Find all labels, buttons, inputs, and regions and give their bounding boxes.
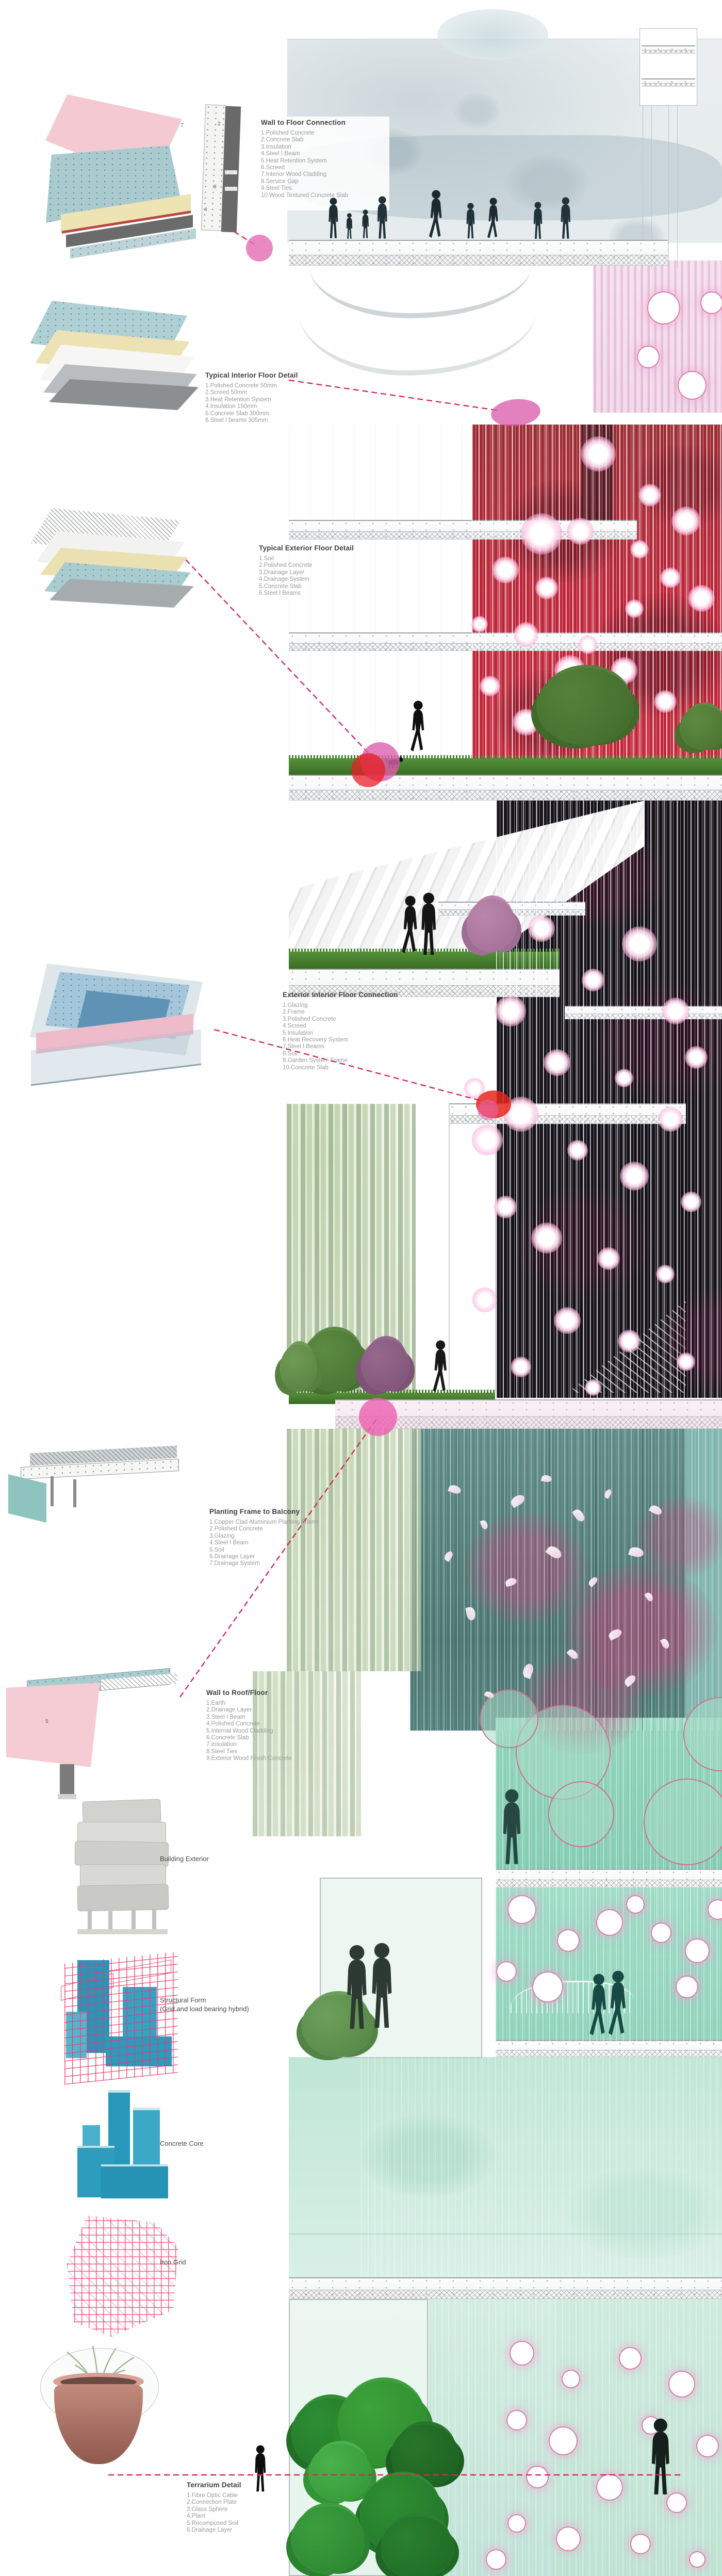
light-orb: [618, 1330, 641, 1352]
light-orb: [480, 676, 500, 696]
light-orb: [647, 291, 680, 324]
light-orb: [549, 2426, 578, 2455]
tree-canopy: [680, 706, 722, 750]
light-orb: [544, 1049, 570, 1076]
detail-item: 4.Insulation 150mm: [205, 403, 277, 410]
person-silhouette: [463, 203, 478, 240]
figure-number: 9: [214, 184, 217, 190]
detail-item: 7.Drainage System: [209, 1560, 319, 1567]
d6-post-cap: [58, 1794, 76, 1799]
light-orb: [554, 1307, 581, 1334]
grass-strip-a: [289, 758, 722, 776]
detail-item: 1.Soil: [259, 556, 313, 562]
detail-title-ext-int: Exterior Interior Floor Connection: [283, 991, 398, 999]
light-orb: [689, 2551, 705, 2568]
light-orb: [496, 1961, 517, 1982]
detail-item: 10.Concrete Slab: [283, 1065, 348, 1071]
light-orb: [656, 1265, 675, 1283]
detail-item: 5.Recomposed Soil: [187, 2520, 238, 2527]
figure-number: 2: [218, 121, 221, 127]
detail-item: 3.Drainage Layer: [259, 569, 313, 576]
light-orb: [671, 507, 700, 535]
person-silhouette: [557, 197, 575, 240]
detail-item: 1.Copper Clad Aluminium Planting Frame: [209, 1519, 319, 1526]
mass-3: [75, 1840, 169, 1867]
light-orb: [472, 1287, 497, 1312]
light-orb: [626, 1895, 645, 1914]
detail-item: 3.Glazing: [209, 1533, 319, 1540]
person-silhouette: [496, 1789, 528, 1867]
detail-list-interior-floor: 1.Polished Concrete 50mm2.Screed 50mm3.H…: [205, 383, 277, 424]
slab-mid-pink-tint: [335, 1399, 722, 1429]
light-orb: [472, 1124, 503, 1155]
top-walkway-slab: [289, 240, 668, 266]
person-silhouette: [373, 196, 391, 240]
shaft-detail: [639, 28, 697, 106]
person-silhouette: [251, 2445, 270, 2493]
detail-title-exterior-floor: Typical Exterior Floor Detail: [259, 544, 354, 552]
light-orb: [696, 2435, 719, 2457]
detail-item: 9.Steel Ties: [261, 185, 348, 192]
slab-mint-2: [496, 2040, 722, 2057]
detail-item: 5.Heat Retention System: [261, 158, 348, 165]
d5-post-b: [73, 1479, 76, 1507]
tree-canopy: [467, 899, 516, 952]
ig-grid: [67, 2215, 178, 2337]
detail-item: 7.Interior Wood Cladding: [261, 171, 348, 178]
detail-title-terrarium: Terrarium Detail: [187, 2481, 241, 2489]
detail-item: 5.Concrete Slab 300mm: [205, 411, 277, 417]
light-orb: [495, 996, 526, 1026]
light-orb: [557, 1929, 580, 1952]
light-orb: [582, 969, 604, 991]
mass-post-c: [132, 1910, 136, 1930]
person-silhouette: [430, 1340, 451, 1395]
mass-post-a: [88, 1909, 92, 1929]
detail-item: 9.Exterior Wood Finish Concrete: [206, 1755, 292, 1762]
light-orb: [528, 915, 555, 942]
detail-list-exterior-floor: 1.Soil2.Polished Concrete3.Drainage Laye…: [259, 556, 313, 597]
outlined-circle: [480, 1689, 538, 1748]
detail-item: 2.Polished Concrete: [209, 1526, 319, 1532]
detail-title-interior-floor: Typical Interior Floor Detail: [205, 371, 298, 379]
shaft-rail-b: [668, 106, 678, 268]
light-orb: [622, 926, 657, 961]
mass-2: [77, 1822, 166, 1844]
detail-item: 3.Glass Sphere: [187, 2506, 238, 2513]
light-orb: [514, 622, 538, 647]
detail-item: 4.Steel I Beam: [209, 1540, 319, 1546]
light-orb: [700, 291, 722, 314]
detail-item: 2.Connection Plate: [187, 2499, 238, 2506]
light-orb: [507, 2514, 526, 2533]
detail-item: 4.Plant: [187, 2513, 238, 2520]
d5-teal-wing: [8, 1471, 46, 1523]
mass-base: [77, 1929, 168, 1934]
light-orb: [660, 567, 681, 588]
watercolor-blob-top: [437, 9, 548, 60]
light-orb: [654, 690, 677, 713]
pool-waterline: [289, 2233, 722, 2235]
d1-steel-tie-a: [225, 170, 237, 174]
detail-item: 7.Insulation: [206, 1741, 292, 1748]
detail-item: 1.Glazing: [283, 1002, 348, 1009]
tree-canopy: [361, 1339, 409, 1392]
shaft-slab-b: [642, 78, 695, 87]
detail-item: 4.Steel I Beam: [261, 151, 348, 157]
callout-dot-1: [246, 235, 273, 262]
outlined-circle: [548, 1781, 614, 1847]
person-silhouette: [359, 209, 371, 239]
light-orb: [556, 2526, 581, 2551]
light-orb: [531, 1222, 562, 1253]
light-orb: [625, 599, 644, 618]
slab-grass-a: [289, 775, 722, 801]
detail-item: 5.Internal Wood Cladding: [206, 1728, 292, 1735]
light-orb: [511, 1357, 531, 1377]
detail-item: 2.Polished Concrete: [259, 562, 313, 569]
d5-post-a: [51, 1476, 54, 1506]
leader-ext-int: [214, 1030, 489, 1103]
detail-item: 1.Polished Concrete 50mm: [205, 383, 277, 389]
light-orb: [662, 998, 689, 1024]
detail-item: 3.Insulation: [261, 144, 348, 151]
light-orb: [513, 709, 539, 736]
detail-item: 1.Earth: [206, 1700, 292, 1707]
person-silhouette: [645, 2418, 677, 2498]
light-orb: [507, 1895, 536, 1924]
person-silhouette: [426, 190, 446, 240]
light-orb: [471, 616, 488, 632]
detail-list-terrarium: 1.Fibre Optic Cable2.Connection Plate3.G…: [187, 2492, 238, 2534]
label-concrete-core: Concrete Core: [160, 2140, 204, 2148]
figure-number: 5: [45, 1719, 48, 1724]
light-orb: [685, 1938, 710, 1963]
person-silhouette: [364, 1943, 400, 2031]
label-iron-grid: Iron Grid: [160, 2258, 186, 2267]
teal-room-mullions: [410, 1429, 686, 1731]
d6-gray-post: [60, 1764, 74, 1797]
detail-item: 3.Heat Retention System: [205, 397, 277, 403]
person-silhouette: [604, 1970, 632, 2039]
light-orb: [506, 2410, 527, 2431]
slab-red-2: [289, 632, 722, 651]
terrarium-pot: [54, 2384, 143, 2464]
light-orb: [503, 1097, 538, 1132]
curved-plate-b: [298, 309, 536, 376]
light-orb: [494, 1196, 517, 1218]
watercolor-blotch: [567, 2166, 722, 2259]
light-orb: [620, 1162, 649, 1191]
detail-item: 8.Soil: [283, 1051, 348, 1057]
d1-steel-tie-b: [225, 187, 237, 191]
light-orb: [562, 2370, 580, 2388]
label-building-exterior: Building Exterior: [160, 1855, 209, 1863]
light-orb: [567, 1140, 588, 1161]
light-orb: [688, 585, 715, 612]
detail-item: 4.Polished Concrete: [206, 1721, 292, 1727]
light-orb: [668, 2371, 695, 2398]
light-orb: [658, 1107, 683, 1132]
detail-item: 5.Insulation: [283, 1030, 348, 1037]
mass-post-b: [108, 1911, 112, 1931]
dog-silhouette: [385, 755, 405, 769]
detail-item: 4.Screed: [283, 1023, 348, 1030]
detail-list-wall-roof: 1.Earth2.Drainage Layer3.Steel I Beam4.P…: [206, 1700, 292, 1763]
detail-item: 2.Screed 50mm: [205, 389, 277, 396]
detail-item: 6.Steel I beams 305mm: [205, 417, 277, 424]
light-orb: [492, 557, 519, 583]
light-orb: [630, 540, 649, 559]
detail-item: 8.Steel Ties: [206, 1749, 292, 1755]
detail-item: 8.Service Gap: [261, 178, 348, 185]
d6-pink-panel: [6, 1683, 100, 1767]
light-orb: [567, 518, 594, 545]
tree-canopy: [536, 668, 634, 745]
watercolor-blotch: [361, 2115, 495, 2197]
light-orb: [585, 1379, 601, 1396]
light-orb: [464, 1078, 485, 1099]
tree-canopy: [280, 1344, 317, 1392]
figure-number: 4: [204, 207, 207, 213]
light-orb: [581, 436, 616, 471]
light-orb: [638, 484, 661, 507]
person-silhouette: [344, 213, 355, 240]
light-orb: [535, 577, 558, 599]
light-orb: [681, 1192, 701, 1212]
detail-title-planting-frame: Planting Frame to Balcony: [209, 1508, 300, 1515]
callout-dot-2: [490, 397, 542, 429]
light-orb: [678, 371, 707, 400]
tree-canopy: [381, 2516, 454, 2576]
detail-title-wall-roof: Wall to Roof/Floor: [206, 1689, 268, 1697]
detail-item: 9.Garden System Frame: [283, 1057, 348, 1064]
tree-canopy: [308, 2444, 371, 2502]
watercolor-blotch: [505, 155, 588, 211]
detail-item: 2.Concrete Slab: [261, 137, 348, 143]
slab-bottom: [289, 2277, 722, 2299]
light-orb: [510, 2341, 534, 2366]
detail-item: 2.Drainage Layer: [206, 1707, 292, 1714]
light-orb: [521, 513, 562, 555]
person-silhouette: [407, 700, 429, 754]
detail-item: 6.Heat Recovery System: [283, 1037, 348, 1044]
mass-post-d: [152, 1909, 156, 1930]
cc-base-2: [101, 2164, 168, 2198]
light-orb: [630, 2534, 651, 2554]
light-orb: [486, 2549, 506, 2570]
person-silhouette: [530, 202, 546, 240]
figure-number: 7: [180, 123, 184, 128]
detail-item: 6.Drainage Layer: [187, 2527, 238, 2534]
detail-item: 6.Drainage Layer: [209, 1554, 319, 1560]
mass-4: [80, 1864, 166, 1887]
mass-5: [77, 1884, 169, 1911]
detail-item: 6.Steel I Beams: [259, 590, 313, 597]
person-silhouette: [325, 198, 342, 240]
person-silhouette: [416, 892, 441, 957]
person-silhouette: [485, 198, 502, 240]
slab-mint-1: [496, 1869, 722, 1888]
detail-item: 5.Soil: [209, 1547, 319, 1554]
detail-item: 5.Concrete Slab: [259, 583, 313, 590]
detail-list-planting-frame: 1.Copper Clad Aluminium Planting Frame2.…: [209, 1519, 319, 1568]
light-orb: [615, 1069, 633, 1087]
facade-lines: [289, 425, 472, 758]
light-orb: [685, 1046, 708, 1069]
detail-item: 7.Steel I Beams: [283, 1044, 348, 1050]
architecture-section-poster: Wall to Floor Connection 1.Polished Conc…: [0, 0, 722, 2576]
mass-1: [82, 1799, 161, 1825]
detail-item: 3.Polished Concrete: [283, 1016, 348, 1023]
detail-item: 3.Steel I Beam: [206, 1714, 292, 1721]
detail-item: 6.Screed: [261, 165, 348, 171]
detail-item: 10.Wood Textured Concrete Slab: [261, 192, 348, 199]
light-orb: [532, 1971, 563, 2002]
shaft-slab-a: [642, 45, 695, 54]
detail-list-ext-int: 1.Glazing2.Frame3.Polished Concrete4.Scr…: [283, 1002, 348, 1071]
label-structural-form-sub: (Grid and load bearing hybrid): [160, 2005, 249, 2013]
tree-canopy: [291, 2506, 365, 2574]
light-orb: [619, 2347, 642, 2370]
light-orb: [526, 2466, 549, 2488]
detail-item: 4.Drainage System: [259, 576, 313, 583]
light-orb: [651, 1922, 671, 1943]
slab-black-2: [565, 1006, 722, 1019]
light-orb: [579, 635, 597, 654]
detail-list-wall-floor: 1.Polished Concrete2.Concrete Slab3.Insu…: [261, 130, 348, 199]
detail-item: 2.Frame: [283, 1009, 348, 1016]
detail-item: 1.Fibre Optic Cable: [187, 2492, 238, 2499]
detail-item: 6.Concrete Slab: [206, 1735, 292, 1741]
light-orb: [597, 1247, 620, 1270]
detail-title-wall-floor: Wall to Floor Connection: [261, 119, 346, 126]
detail-item: 1.Polished Concrete: [261, 130, 348, 137]
light-orb: [596, 1909, 623, 1936]
light-orb: [677, 1352, 695, 1371]
light-orb: [676, 1976, 698, 1998]
label-structural-form: Structural Form: [160, 1996, 206, 2004]
leader-interior-floor: [289, 380, 499, 411]
light-orb: [637, 346, 660, 368]
light-orb: [596, 2474, 623, 2501]
watercolor-blotch: [454, 93, 500, 129]
